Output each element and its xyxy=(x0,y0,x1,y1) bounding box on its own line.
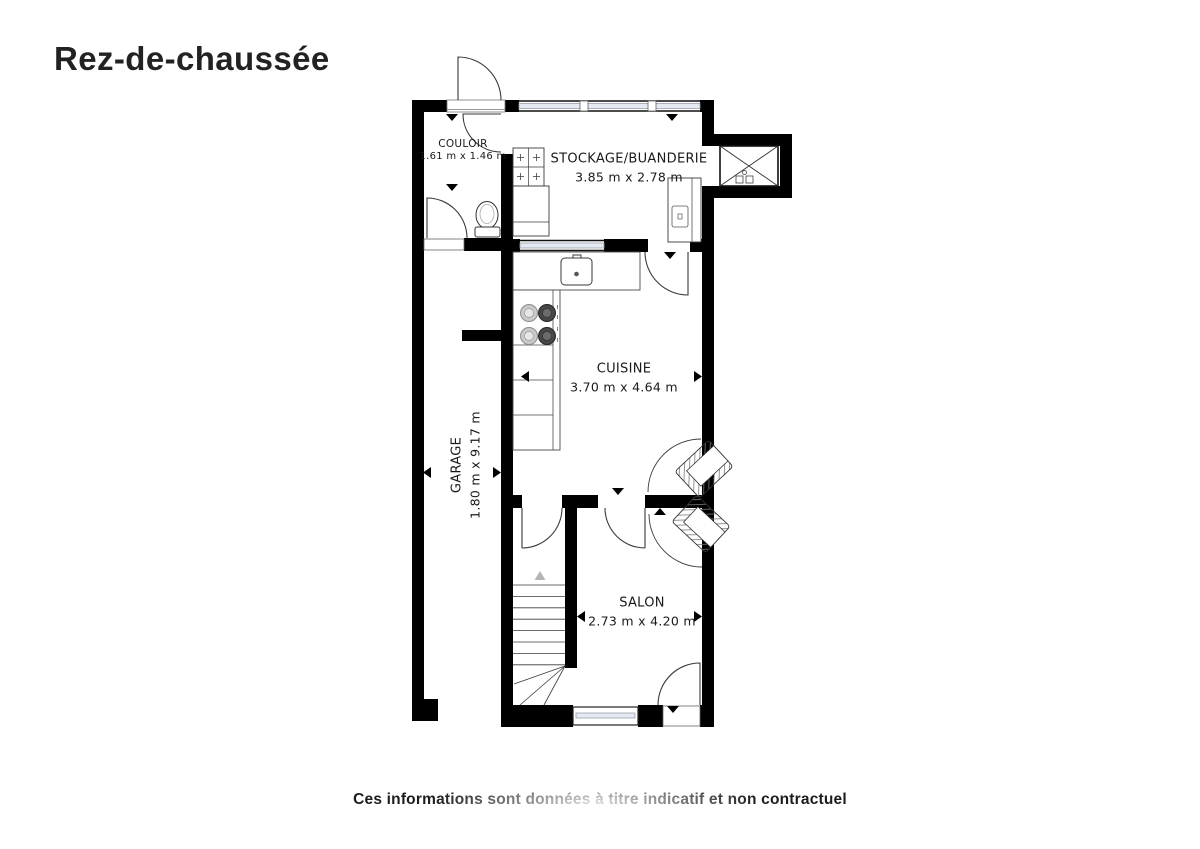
floor-plan-drawing xyxy=(0,0,1200,849)
door-swing-icon xyxy=(658,663,700,705)
cabinet-icon xyxy=(668,178,701,242)
door-swing-icon xyxy=(522,508,562,548)
room-label-stockage: STOCKAGE/BUANDERIE 3.85 m x 2.78 m xyxy=(551,152,708,185)
door-threshold xyxy=(424,239,464,250)
window-icon xyxy=(520,239,604,252)
disclaimer-text: Ces informations sont données à titre in… xyxy=(0,791,1200,809)
door-swing-icon xyxy=(645,252,688,295)
shaft-cross-icon xyxy=(720,146,778,186)
room-label-cuisine: CUISINE 3.70 m x 4.64 m xyxy=(570,362,678,395)
door-swing-icon xyxy=(427,198,467,238)
room-label-salon: SALON 2.73 m x 4.20 m xyxy=(588,596,696,629)
stair-direction-arrow xyxy=(535,571,546,580)
floor-plan-page: Rez-de-chaussée xyxy=(0,0,1200,849)
entrance-threshold xyxy=(447,100,505,112)
washer-grid-icon xyxy=(513,148,549,236)
sink-icon xyxy=(561,255,592,285)
door-swing-icon xyxy=(605,508,645,548)
door-swing-icon xyxy=(458,57,501,100)
window-icon xyxy=(573,707,638,725)
door-threshold xyxy=(663,706,700,726)
window-icon xyxy=(519,100,700,112)
staircase-icon xyxy=(513,571,565,705)
armchair-icon xyxy=(675,440,733,498)
room-label-garage: GARAGE 1.80 m x 9.17 m xyxy=(450,411,483,519)
toilet-icon xyxy=(475,202,500,238)
room-label-couloir: COULOIR 1.61 m x 1.46 m xyxy=(419,138,506,162)
